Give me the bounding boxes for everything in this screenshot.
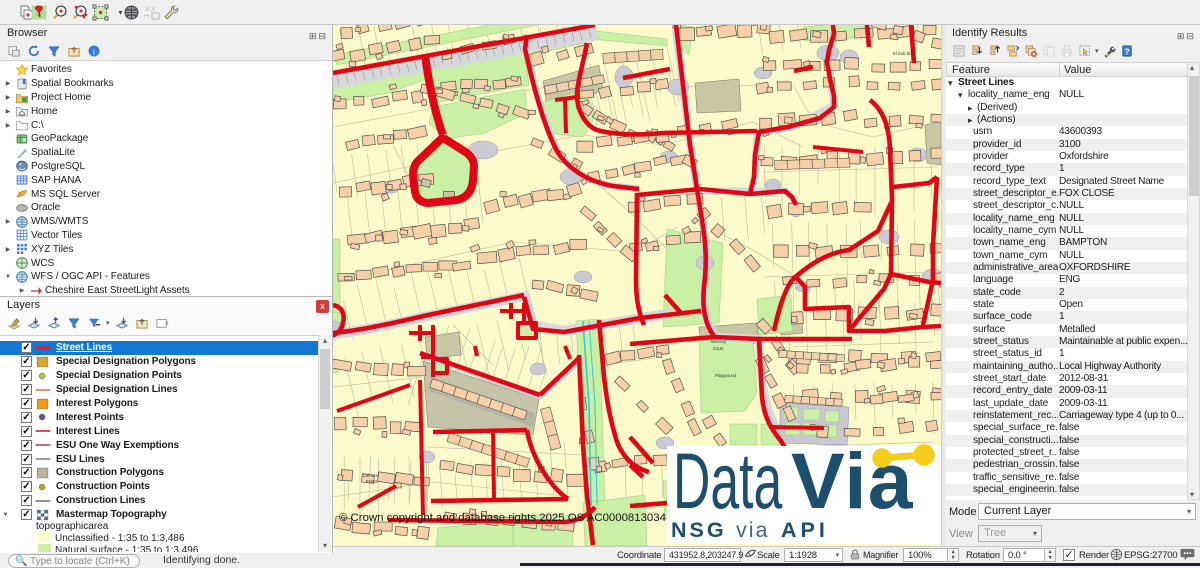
svg-text:Data: Data [673,438,783,526]
svg-text:↦: ↦ [144,13,150,20]
svg-text:Cathurst: Cathurst [363,473,380,478]
svg-text:© Crown copyright and database: © Crown copyright and database rights 20… [339,512,666,524]
svg-text:Estate: Estate [366,479,379,484]
svg-text:Mercury: Mercury [711,339,727,344]
svg-text:El Sub Sta: El Sub Sta [893,51,913,56]
svg-text:X,Y: X,Y [145,6,156,13]
svg-text:NSG: NSG [671,518,727,542]
svg-text:Playground: Playground [715,373,737,378]
svg-text:via: via [736,518,769,542]
svg-text:Via: Via [791,437,914,525]
svg-text:API: API [781,518,829,542]
svg-text:?: ? [1124,46,1129,56]
svg-text:Court: Court [713,346,724,351]
